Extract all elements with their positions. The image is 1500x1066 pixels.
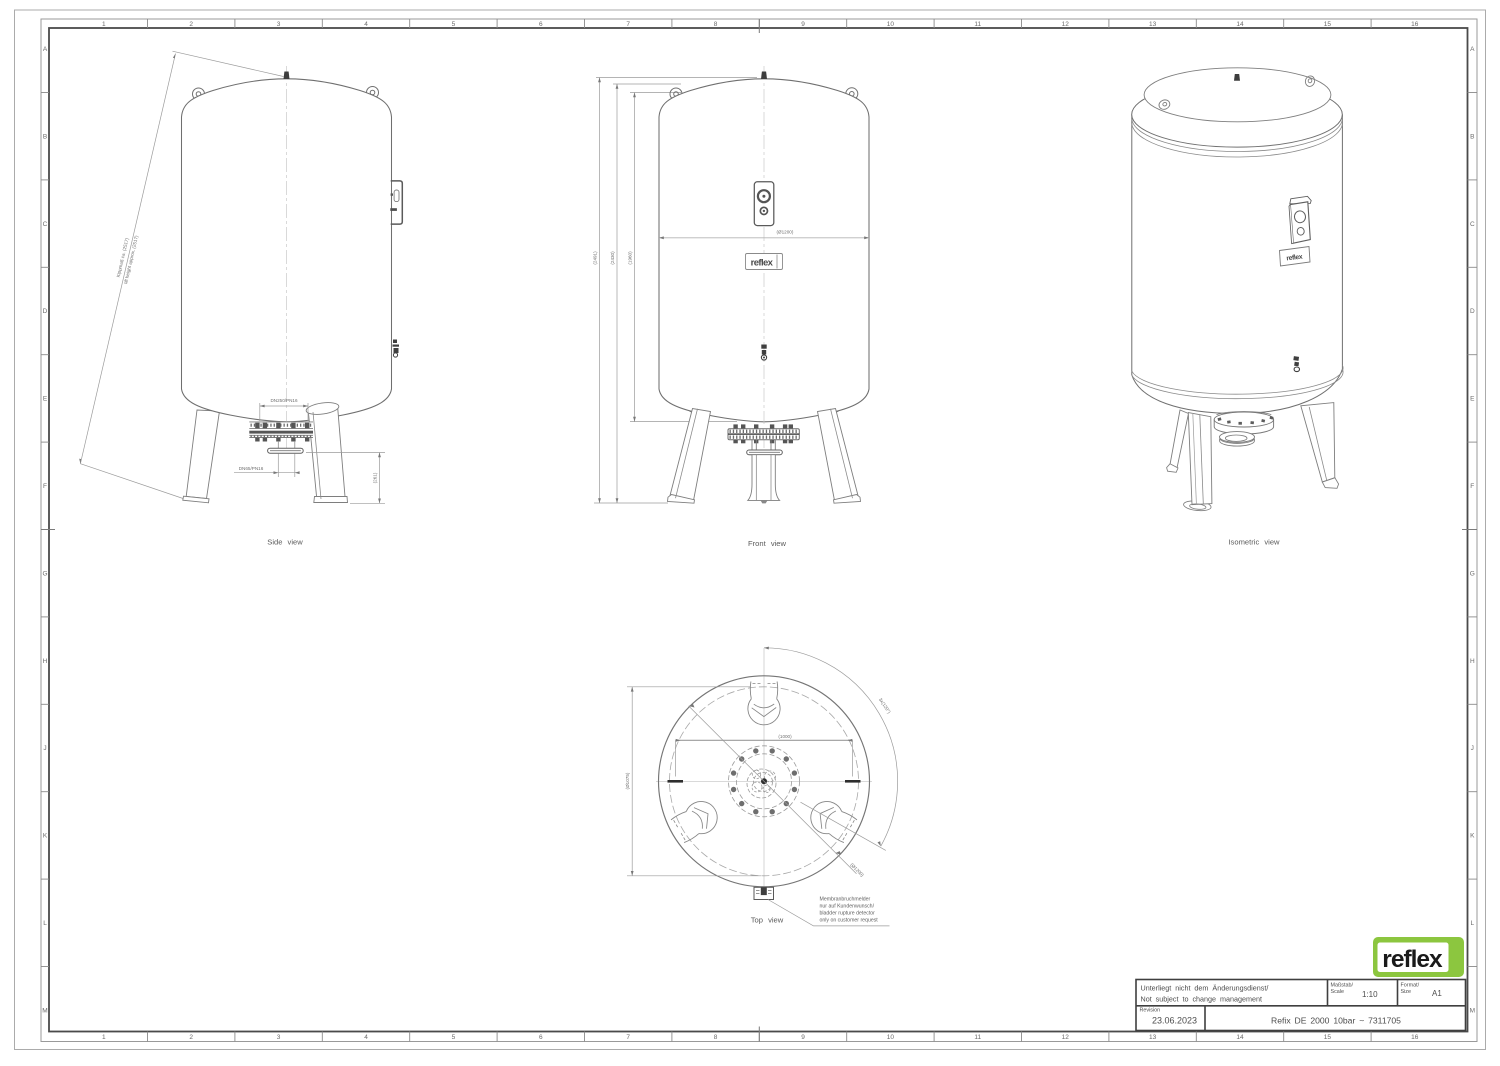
svg-text:16: 16	[1411, 1034, 1419, 1041]
svg-text:Maßstab/: Maßstab/	[1331, 983, 1354, 989]
svg-text:D: D	[43, 308, 48, 315]
svg-text:F: F	[1470, 483, 1474, 490]
svg-text:K: K	[43, 833, 48, 840]
svg-text:Top view: Top view	[751, 916, 784, 925]
svg-text:8: 8	[714, 1034, 718, 1041]
svg-text:J: J	[43, 745, 46, 752]
svg-text:Front view: Front view	[748, 539, 787, 548]
svg-text:Membranbruchmelder: Membranbruchmelder	[820, 897, 871, 903]
svg-text:Refix DE 2000 10bar ~ 7311705: Refix DE 2000 10bar ~ 7311705	[1271, 1016, 1401, 1026]
svg-text:9: 9	[801, 21, 805, 28]
svg-text:C: C	[43, 221, 48, 228]
svg-text:D: D	[1470, 308, 1475, 315]
svg-text:reflex: reflex	[1382, 946, 1443, 973]
svg-text:10: 10	[887, 21, 895, 28]
svg-text:only on customer request: only on customer request	[820, 918, 879, 924]
svg-text:Isometric view: Isometric view	[1228, 538, 1280, 547]
svg-text:DN250/PN16: DN250/PN16	[270, 398, 298, 403]
svg-text:Side view: Side view	[267, 538, 303, 547]
svg-text:23.06.2023: 23.06.2023	[1152, 1016, 1197, 1026]
svg-text:J: J	[1471, 745, 1474, 752]
svg-text:Format/: Format/	[1401, 983, 1420, 989]
svg-text:Unterliegt nicht dem Änderungs: Unterliegt nicht dem Änderungsdienst/	[1141, 984, 1269, 993]
svg-text:M: M	[1470, 1007, 1475, 1014]
svg-text:C: C	[1470, 221, 1475, 228]
svg-text:B: B	[43, 133, 47, 140]
svg-text:10: 10	[887, 1034, 895, 1041]
svg-text:7: 7	[626, 21, 630, 28]
svg-text:1:10: 1:10	[1362, 990, 1378, 999]
svg-text:(2491): (2491)	[593, 251, 598, 265]
svg-text:M: M	[42, 1007, 47, 1014]
svg-text:9: 9	[801, 1034, 805, 1041]
svg-text:(Ø1075): (Ø1075)	[625, 772, 630, 789]
svg-text:E: E	[1470, 396, 1475, 403]
svg-text:14: 14	[1236, 21, 1244, 28]
svg-text:12: 12	[1062, 1034, 1070, 1041]
svg-text:4: 4	[364, 21, 368, 28]
svg-text:5: 5	[452, 21, 456, 28]
svg-text:1: 1	[102, 21, 106, 28]
svg-text:6: 6	[539, 21, 543, 28]
svg-text:15: 15	[1324, 1034, 1332, 1041]
svg-text:Not subject to change manageme: Not subject to change management	[1141, 995, 1262, 1004]
svg-text:3: 3	[277, 21, 281, 28]
svg-text:13: 13	[1149, 21, 1157, 28]
svg-text:A1: A1	[1432, 989, 1442, 998]
svg-text:G: G	[42, 570, 47, 577]
svg-text:(1960): (1960)	[628, 251, 633, 265]
svg-text:H: H	[43, 658, 48, 665]
svg-text:A: A	[43, 46, 48, 53]
svg-text:F: F	[43, 483, 47, 490]
svg-text:8: 8	[714, 21, 718, 28]
svg-text:1: 1	[102, 1034, 106, 1041]
svg-text:2: 2	[189, 21, 193, 28]
svg-text:(2430): (2430)	[610, 251, 615, 265]
svg-text:Scale: Scale	[1331, 989, 1345, 995]
svg-text:nur auf Kundenwunsch/: nur auf Kundenwunsch/	[820, 904, 875, 910]
svg-text:3: 3	[277, 1034, 281, 1041]
svg-text:B: B	[1470, 133, 1474, 140]
svg-text:E: E	[43, 396, 48, 403]
svg-text:5: 5	[452, 1034, 456, 1041]
svg-text:A: A	[1470, 46, 1475, 53]
svg-text:11: 11	[974, 1034, 981, 1041]
svg-text:3x(120°): 3x(120°)	[878, 697, 892, 715]
svg-text:(261): (261)	[373, 472, 378, 483]
svg-text:L: L	[1470, 920, 1474, 927]
svg-text:Size: Size	[1401, 989, 1412, 995]
svg-text:DN65/PN16: DN65/PN16	[239, 466, 264, 471]
svg-text:14: 14	[1236, 1034, 1244, 1041]
svg-text:K: K	[1470, 833, 1475, 840]
svg-text:16: 16	[1411, 21, 1419, 28]
svg-text:11: 11	[974, 21, 981, 28]
svg-text:(1000): (1000)	[778, 734, 792, 739]
svg-text:12: 12	[1062, 21, 1070, 28]
svg-text:2: 2	[189, 1034, 193, 1041]
svg-text:13: 13	[1149, 1034, 1157, 1041]
svg-text:4: 4	[364, 1034, 368, 1041]
svg-text:(Ø1200): (Ø1200)	[777, 230, 794, 235]
svg-text:G: G	[1470, 570, 1475, 577]
svg-text:L: L	[43, 920, 47, 927]
svg-text:bladder rupture detector: bladder rupture detector	[820, 911, 876, 917]
svg-text:Revision: Revision	[1140, 1008, 1161, 1014]
svg-text:7: 7	[626, 1034, 630, 1041]
svg-text:reflex: reflex	[751, 258, 774, 269]
svg-text:(Ø1200): (Ø1200)	[849, 862, 865, 878]
svg-text:15: 15	[1324, 21, 1332, 28]
svg-text:H: H	[1470, 658, 1475, 665]
svg-text:6: 6	[539, 1034, 543, 1041]
